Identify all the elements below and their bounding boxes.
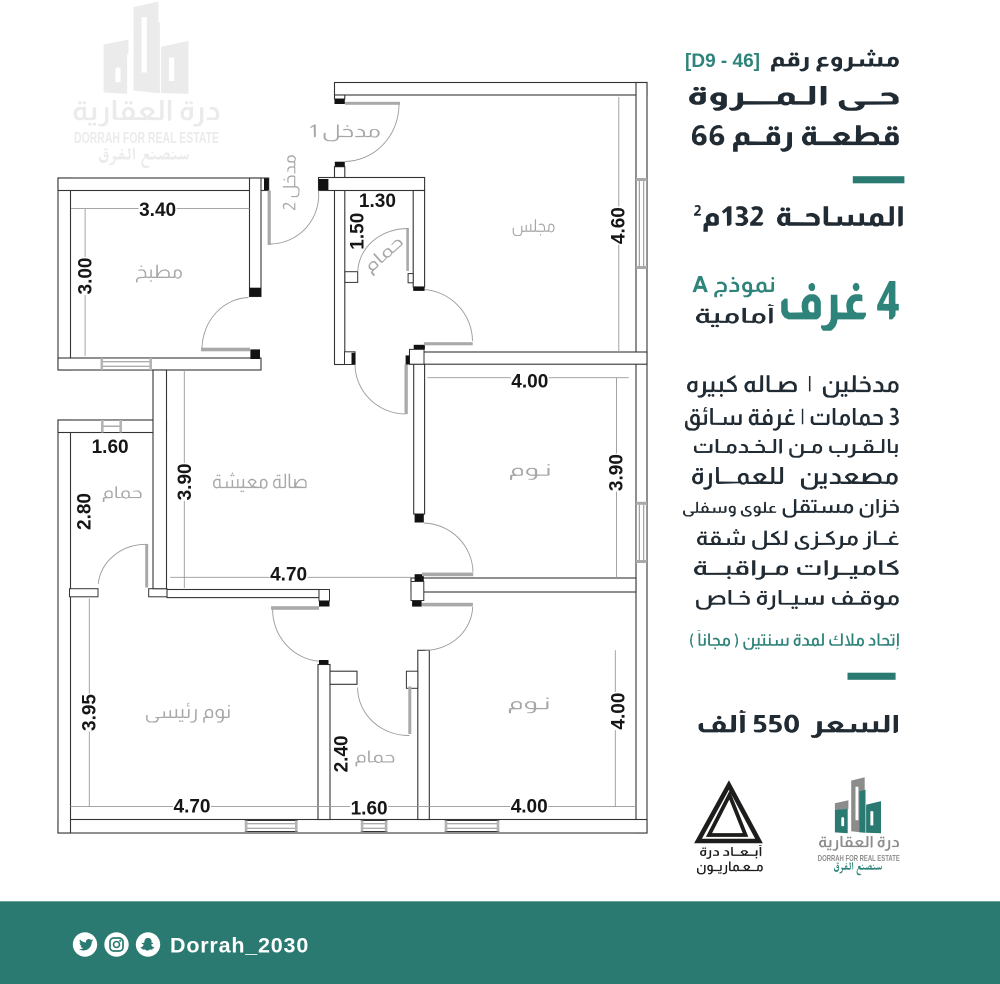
svg-text:4.60: 4.60: [609, 207, 630, 244]
svg-text:3.90: 3.90: [175, 463, 196, 500]
svg-text:3.90: 3.90: [606, 454, 627, 491]
svg-text:DORRAH FOR REAL ESTATE: DORRAH FOR REAL ESTATE: [74, 130, 219, 147]
svg-text:4.00: 4.00: [511, 797, 548, 818]
svg-text:1.30: 1.30: [359, 191, 396, 212]
svg-text:3.00: 3.00: [76, 258, 97, 295]
svg-text:[D9 - 46]: [D9 - 46]: [685, 51, 760, 72]
svg-text:4.70: 4.70: [174, 797, 211, 818]
svg-text:3.95: 3.95: [79, 694, 100, 731]
svg-text:1.60: 1.60: [92, 437, 129, 458]
svg-text:4.70: 4.70: [270, 565, 307, 586]
svg-text:Dorrah_2030: Dorrah_2030: [170, 934, 309, 958]
svg-text:2.80: 2.80: [75, 493, 96, 530]
svg-text:4.00: 4.00: [609, 693, 630, 730]
svg-text:1.60: 1.60: [351, 799, 388, 820]
svg-text:1.50: 1.50: [348, 213, 369, 250]
svg-text:DORRAH FOR REAL ESTATE: DORRAH FOR REAL ESTATE: [818, 853, 900, 863]
svg-text:4.00: 4.00: [511, 372, 548, 393]
svg-text:3.40: 3.40: [139, 200, 176, 221]
svg-text:2.40: 2.40: [331, 735, 352, 772]
